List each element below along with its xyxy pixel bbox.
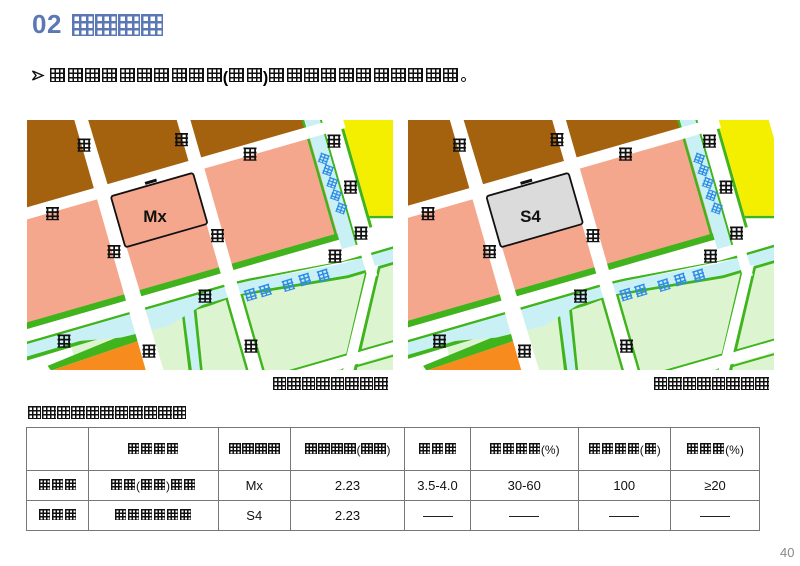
svg-text:S4: S4 <box>520 207 541 226</box>
svg-text:Mx: Mx <box>143 207 167 226</box>
